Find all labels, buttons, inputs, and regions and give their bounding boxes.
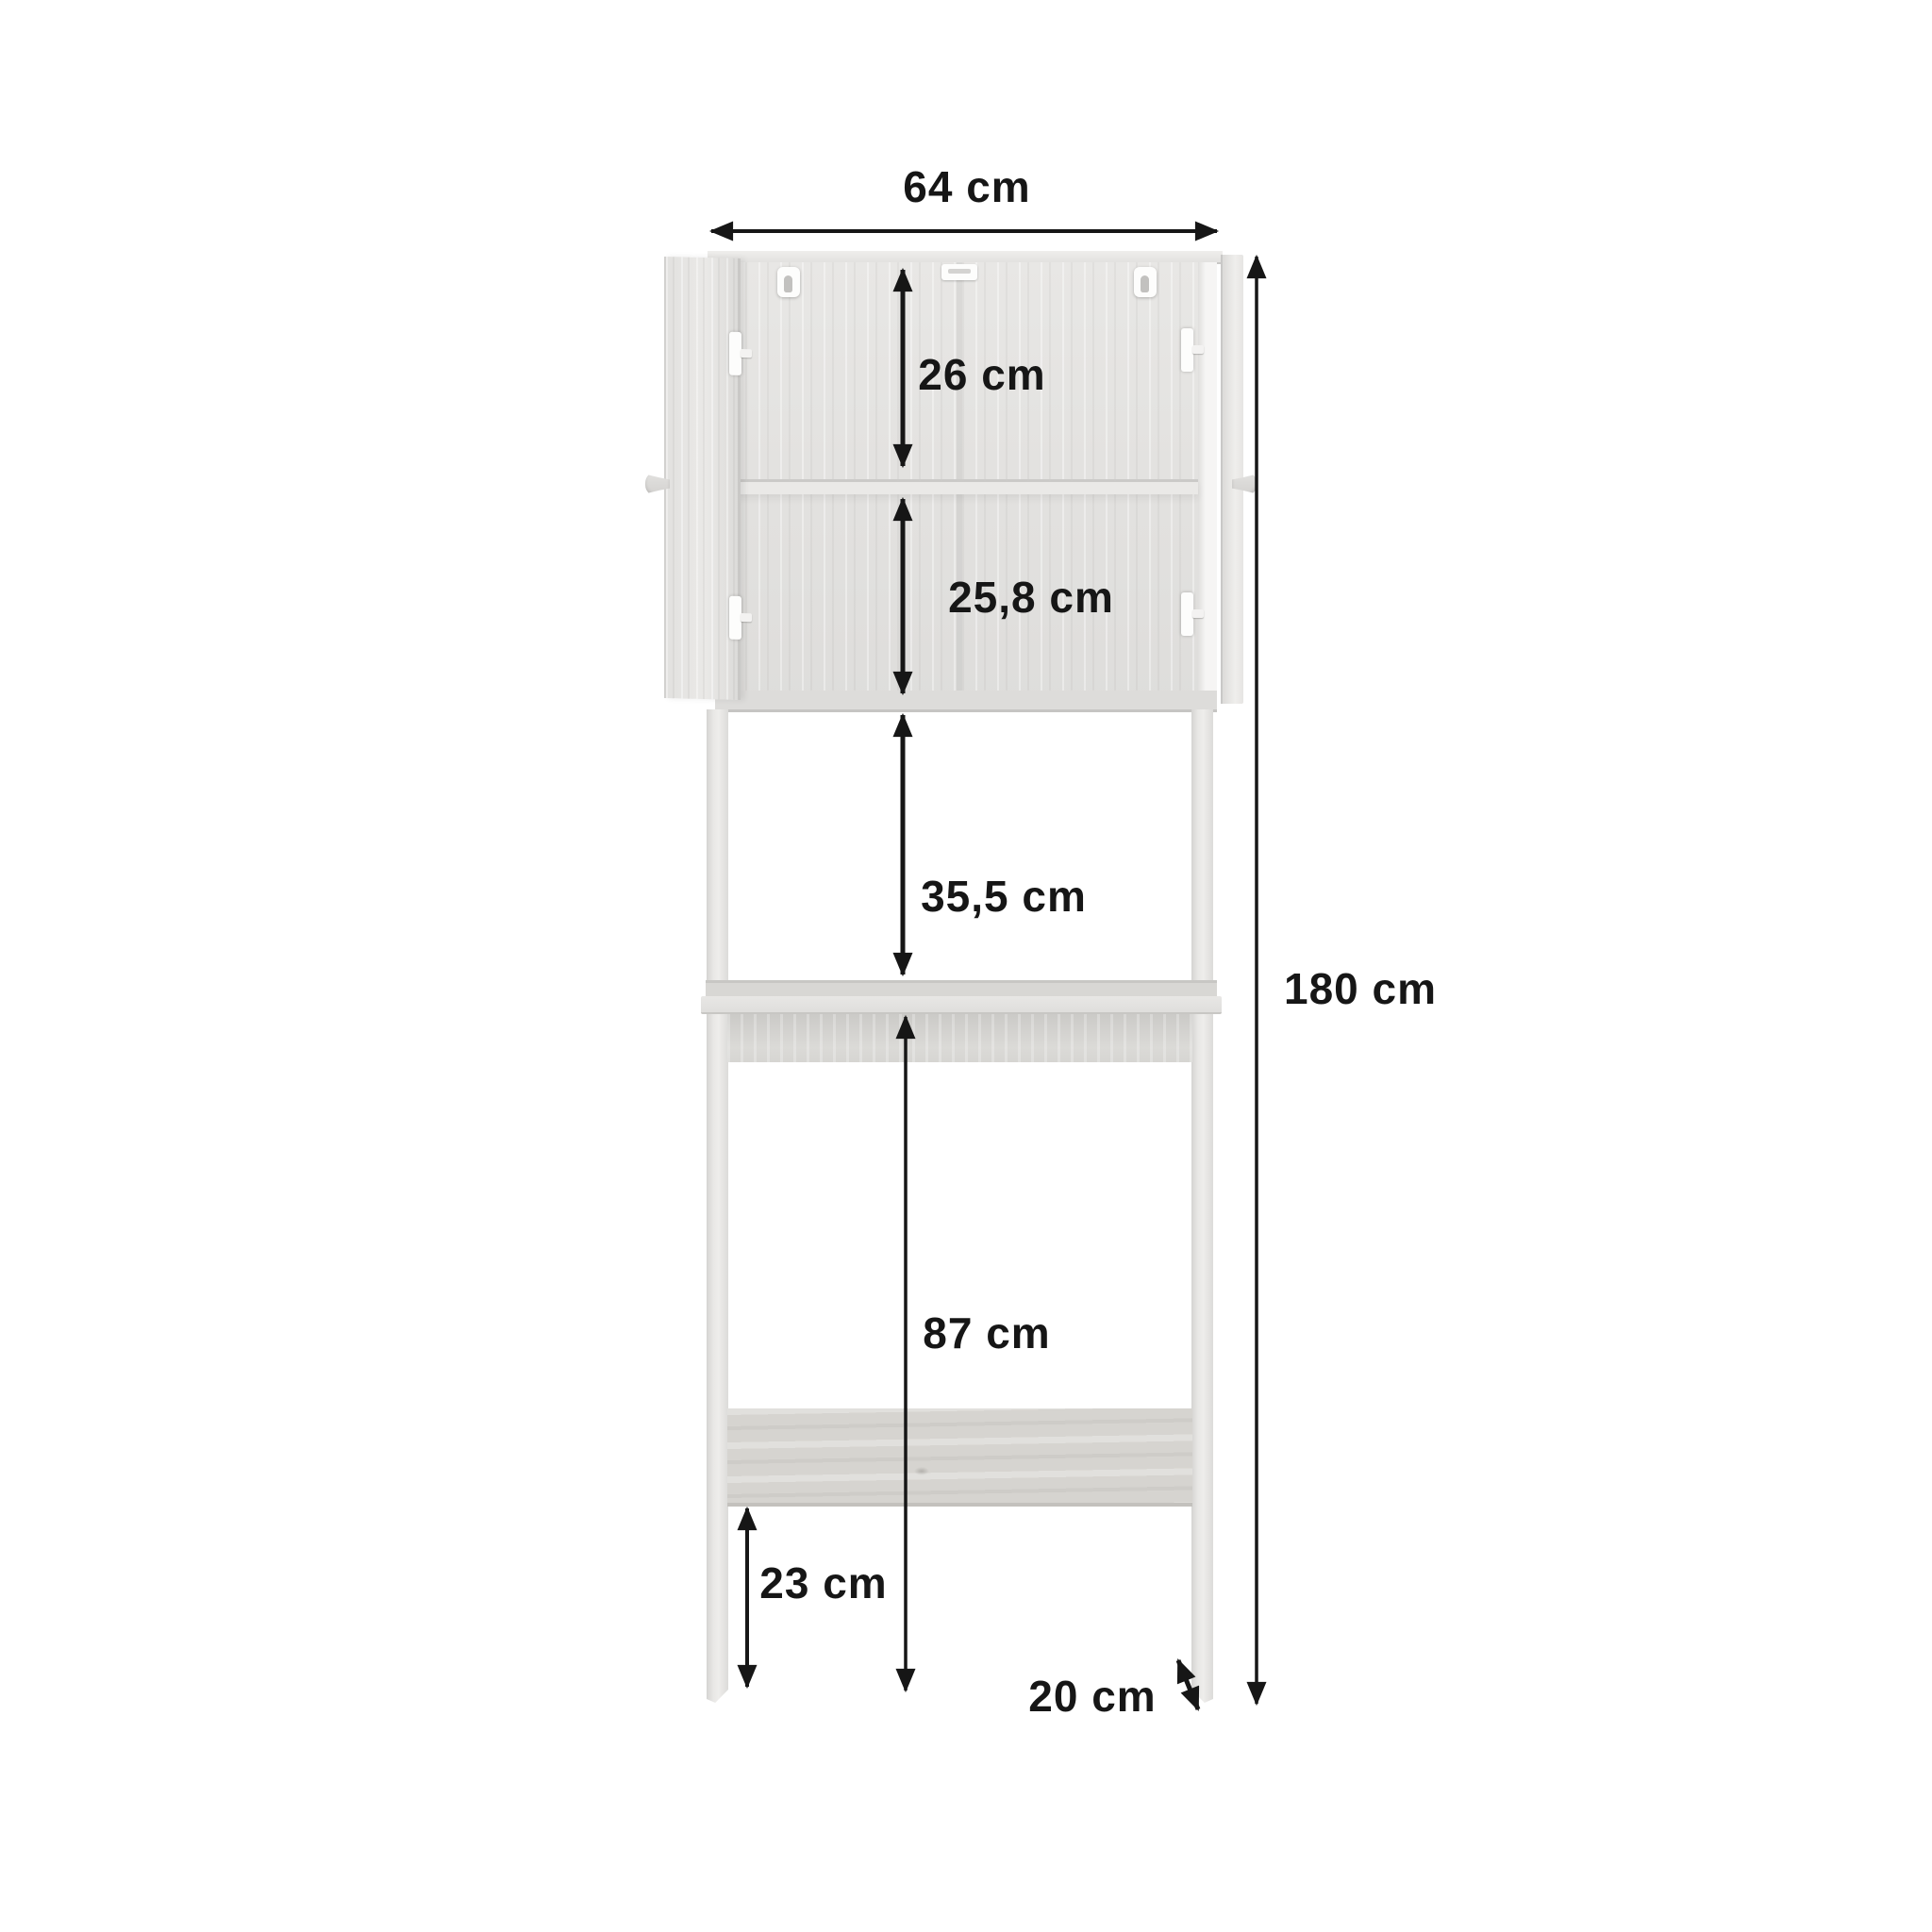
dim-label-lower-compartment: 25,8 cm — [948, 575, 1114, 619]
dim-label-overall-height: 180 cm — [1284, 967, 1437, 1010]
dim-label-shelf-to-floor: 87 cm — [923, 1311, 1050, 1355]
dim-label-depth: 20 cm — [1028, 1674, 1156, 1718]
dim-label-stretcher-to-floor: 23 cm — [759, 1561, 887, 1605]
dim-label-cabinet-to-shelf: 35,5 cm — [921, 874, 1087, 918]
dim-label-upper-compartment: 26 cm — [918, 353, 1045, 396]
dimension-arrows-layer — [0, 0, 1932, 1932]
dimension-diagram-canvas: 64 cm 26 cm 25,8 cm 35,5 cm 87 cm 23 cm … — [0, 0, 1932, 1932]
dim-line-depth — [1178, 1660, 1198, 1709]
dim-label-overall-width: 64 cm — [903, 165, 1030, 208]
